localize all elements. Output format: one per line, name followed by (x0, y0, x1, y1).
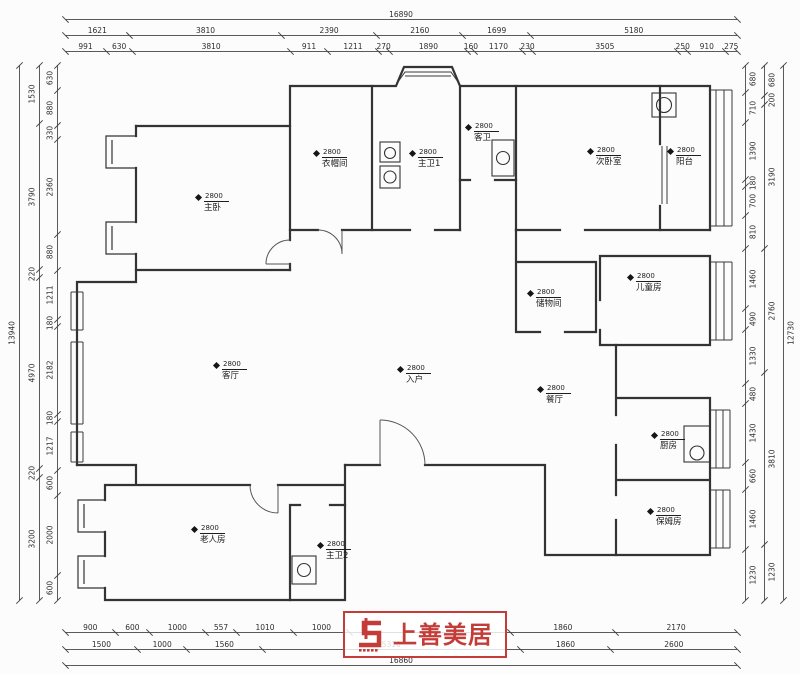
floor-plan-canvas: 16890 162138102390216016995180 991630381… (0, 0, 800, 674)
level-marker-icon (537, 386, 544, 393)
dimension-value: 2170 (667, 624, 686, 633)
level-marker-icon (465, 124, 472, 131)
level-marker-icon (191, 526, 198, 533)
dimension-value: 3790 (28, 187, 36, 206)
dimension-value: 480 (749, 386, 757, 400)
dimension-value: 2760 (768, 301, 776, 320)
dimension-value: 1010 (255, 624, 274, 633)
dimension-value: 12730 (787, 321, 795, 345)
dimension-value: 16890 (389, 11, 413, 20)
dimension-value: 600 (46, 476, 54, 490)
floor-plan-drawing (0, 0, 800, 674)
room-label-cloakroom: 2800衣帽间 (314, 148, 348, 170)
room-label-children-room: 2800儿童房 (628, 272, 662, 294)
level-marker-icon (587, 148, 594, 155)
dimension-value: 13940 (8, 321, 16, 345)
level-marker-icon (667, 148, 674, 155)
level-marker-icon (317, 542, 324, 549)
room-label-nanny-room: 2800保姆房 (648, 506, 682, 528)
dimension-value: 1460 (749, 269, 757, 288)
dimension-value: 630 (46, 71, 54, 85)
dimension-value: 1000 (168, 624, 187, 633)
dimension-value: 1500 (92, 641, 111, 650)
room-label-master-bath-2: 2800主卫2 (318, 540, 351, 562)
dimension-value: 1460 (749, 510, 757, 529)
dimension-value: 1230 (768, 563, 776, 582)
dimension-value: 880 (46, 245, 54, 259)
level-marker-icon (213, 362, 220, 369)
room-label-guest-bath: 2800客卫 (466, 122, 499, 144)
level-marker-icon (397, 366, 404, 373)
dimension-value: 911 (302, 43, 316, 52)
windows (71, 72, 732, 548)
dimension-value: 1430 (749, 423, 757, 442)
dimension-value: 330 (46, 125, 54, 139)
dimension-value: 700 (749, 194, 757, 208)
dimension-value: 1000 (153, 641, 172, 650)
room-label-storage: 2800储物间 (528, 288, 562, 310)
dimension-value: 1621 (88, 27, 107, 36)
dimension-value: 490 (749, 312, 757, 326)
bay-windows (78, 136, 136, 588)
dimension-value: 1000 (312, 624, 331, 633)
dimension-value: 1890 (419, 43, 438, 52)
brand-logo: 上善美居 (343, 611, 507, 658)
dimension-value: 2360 (46, 177, 54, 196)
dimension-value: 2600 (664, 641, 683, 650)
dim-chain-right-total: 12730 (783, 65, 798, 600)
dimension-value: 991 (78, 43, 92, 52)
dimension-value: 600 (125, 624, 139, 633)
level-marker-icon (647, 508, 654, 515)
level-marker-icon (313, 150, 320, 157)
dimension-value: 1390 (749, 141, 757, 160)
dimension-value: 557 (214, 624, 228, 633)
room-label-master-bath-1: 2800主卫1 (410, 148, 443, 170)
dimension-value: 680 (768, 73, 776, 87)
room-label-dining-room: 2800餐厅 (538, 384, 571, 406)
dimension-value: 1217 (46, 437, 54, 456)
dim-chain-top-total: 16890 (65, 5, 737, 20)
brand-logo-text: 上善美居 (393, 623, 493, 647)
dim-chain-left-inner: 6308803302360880121118021821801217600200… (43, 65, 58, 600)
room-label-elder-room: 2800老人房 (192, 524, 226, 546)
dim-chain-left-total: 13940 (5, 65, 20, 600)
dimension-value: 3190 (768, 167, 776, 186)
dimension-value: 2182 (46, 361, 54, 380)
dimension-value: 600 (46, 581, 54, 595)
room-label-living-room: 2800客厅 (214, 360, 247, 382)
dimension-value: 1330 (749, 347, 757, 366)
dimension-value: 1560 (215, 641, 234, 650)
dimension-value: 880 (46, 101, 54, 115)
dimension-value: 3810 (202, 43, 221, 52)
level-marker-icon (409, 150, 416, 157)
room-label-master-bedroom: 2800主卧 (196, 192, 229, 214)
dimension-value: 1170 (489, 43, 508, 52)
dimension-value: 710 (749, 100, 757, 114)
dimension-value: 4970 (28, 364, 36, 383)
dimension-value: 660 (749, 469, 757, 483)
dimension-value: 1530 (28, 85, 36, 104)
level-marker-icon (627, 274, 634, 281)
dimension-value: 275 (724, 43, 738, 52)
level-marker-icon (195, 194, 202, 201)
dimension-value: 1230 (749, 565, 757, 584)
dimension-value: 1860 (556, 641, 575, 650)
dimension-value: 1211 (46, 285, 54, 304)
dimension-value: 900 (83, 624, 97, 633)
dimension-value: 630 (112, 43, 126, 52)
dim-chain-right-inner: 6807101390180700810146049013304801430660… (745, 65, 760, 600)
dimension-value: 3810 (196, 27, 215, 36)
dimension-value: 3505 (595, 43, 614, 52)
dim-chain-left-middle: 1530379022049702203200 (25, 65, 40, 600)
dimension-value: 1699 (487, 27, 506, 36)
dimension-value: 1211 (343, 43, 362, 52)
level-marker-icon (651, 432, 658, 439)
room-label-kitchen: 2800厨房 (652, 430, 685, 452)
dimension-value: 3200 (28, 529, 36, 548)
dimension-value: 5180 (624, 27, 643, 36)
dimension-value: 910 (700, 43, 714, 52)
level-marker-icon (527, 290, 534, 297)
brand-logo-glyph-icon (350, 615, 390, 655)
dimension-value: 680 (749, 72, 757, 86)
dimension-value: 810 (749, 225, 757, 239)
room-label-balcony: 2800阳台 (668, 146, 701, 168)
room-label-entry: 2800入户 (398, 364, 431, 386)
dimension-value: 2000 (46, 526, 54, 545)
room-label-second-bedroom: 2800次卧室 (588, 146, 622, 168)
dimension-value: 2160 (410, 27, 429, 36)
dimension-value: 1860 (553, 624, 572, 633)
dim-chain-top-row3: 9916303810911121127018901601170230350525… (65, 37, 737, 52)
dimension-value: 2390 (320, 27, 339, 36)
dimension-value: 3810 (768, 449, 776, 468)
dim-chain-right-middle: 6802003190276038101230 (764, 65, 779, 600)
dim-chain-top-row2: 162138102390216016995180 (65, 21, 737, 36)
